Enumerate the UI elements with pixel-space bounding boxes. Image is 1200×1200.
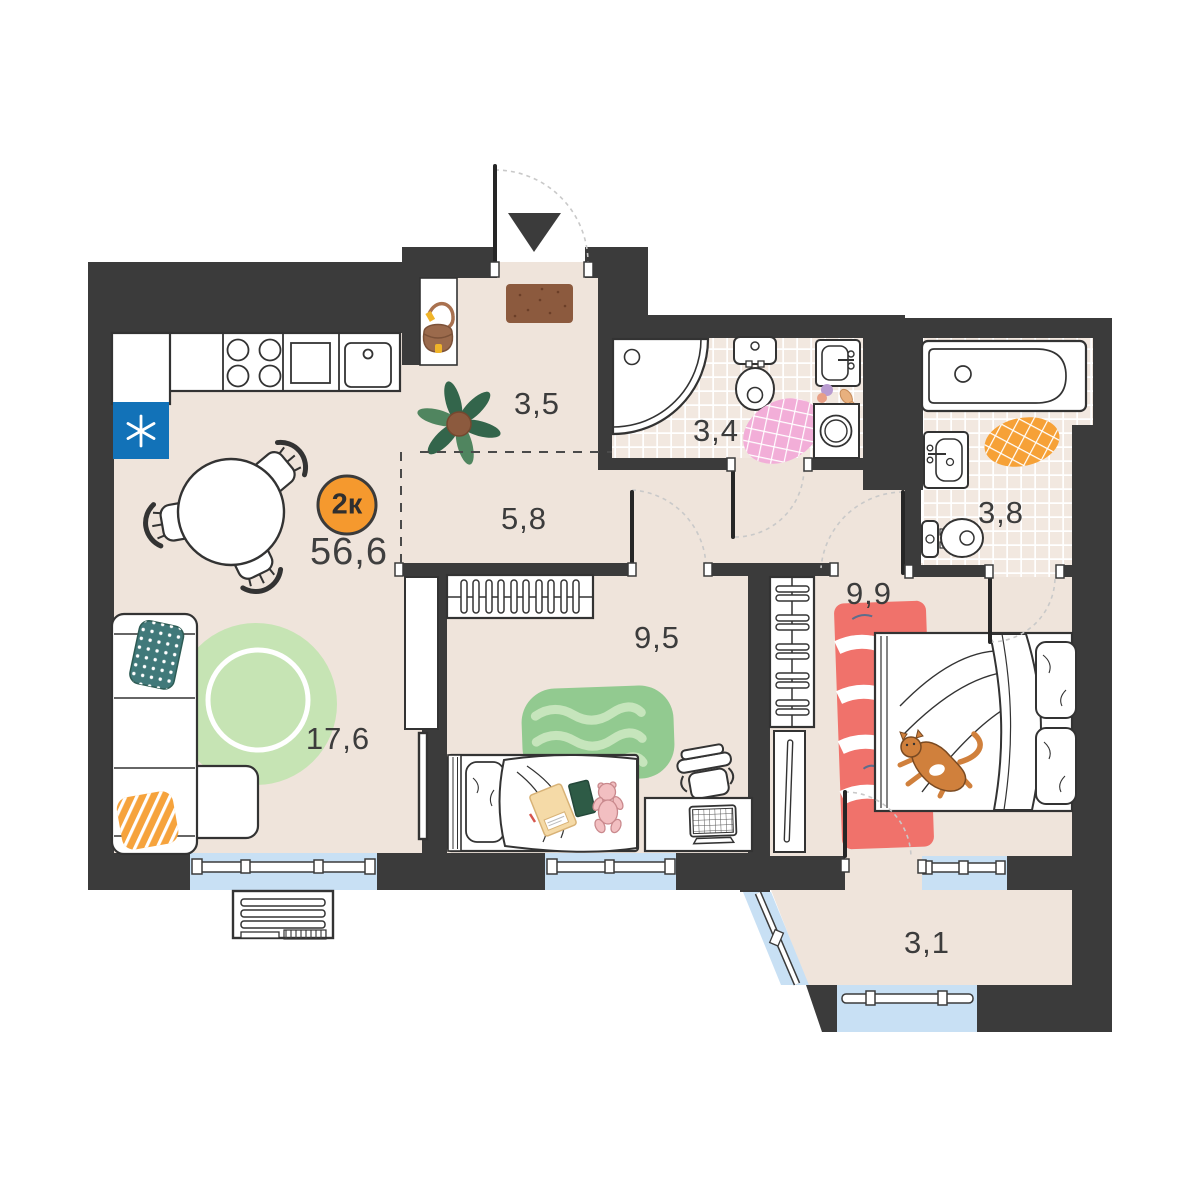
pillow — [466, 762, 504, 842]
floor-plan-drawing — [0, 0, 1200, 1200]
children-wardrobe — [447, 575, 593, 618]
washing-machine — [814, 404, 859, 458]
bedroom-window — [922, 856, 1007, 890]
room-area-kitchen-living: 17,6 — [306, 721, 370, 757]
room-area-bathroom: 3,4 — [693, 413, 739, 449]
orange-pillow — [115, 789, 180, 851]
bathroom-2-sink — [924, 432, 968, 488]
tv — [419, 733, 427, 839]
room-area-bathroom-2: 3,8 — [978, 495, 1024, 531]
mirror-panel — [774, 731, 805, 852]
doormat — [506, 284, 573, 323]
room-area-corridor: 5,8 — [501, 501, 547, 537]
bedroom-wardrobe — [770, 577, 814, 727]
round-rug — [175, 623, 337, 785]
bathtub — [922, 341, 1086, 411]
tv-cabinet — [405, 577, 438, 729]
floor-plan: 2к 56,6 3,5 3,4 5,8 3,8 9,9 9,5 17,6 3,1 — [0, 0, 1200, 1200]
children-bed — [448, 755, 638, 852]
ac-unit — [233, 891, 333, 939]
children-room-window — [545, 853, 676, 890]
room-area-balcony: 3,1 — [904, 925, 950, 961]
total-area-label: 56,6 — [310, 531, 388, 574]
living-room-window — [190, 853, 377, 890]
toilet-2 — [922, 519, 983, 557]
bathroom-sink — [816, 340, 860, 386]
room-area-bedroom: 9,9 — [846, 576, 892, 612]
room-area-hallway: 3,5 — [514, 386, 560, 422]
apartment-type-badge: 2к — [317, 475, 378, 536]
entry-arrow-icon — [508, 213, 561, 252]
laptop — [689, 805, 736, 844]
room-area-children-room: 9,5 — [634, 620, 680, 656]
kitchen-sink — [345, 343, 391, 387]
fridge — [113, 402, 169, 459]
dining-table — [178, 459, 284, 565]
double-bed — [875, 633, 1076, 811]
